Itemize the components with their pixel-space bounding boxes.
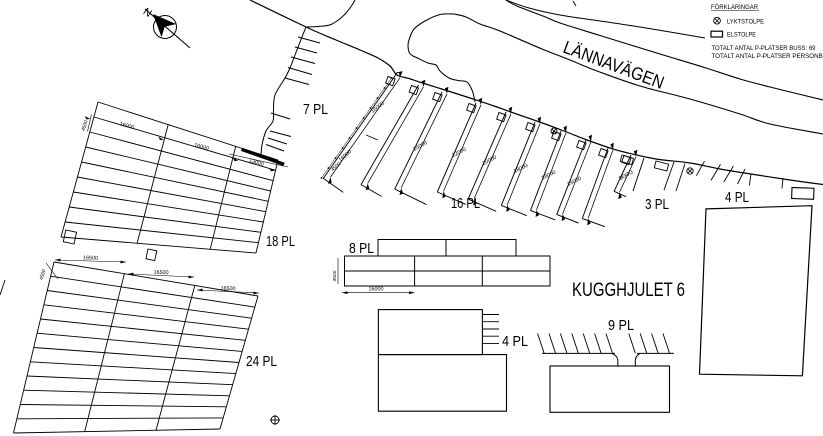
svg-text:16000: 16000 xyxy=(369,287,384,293)
svg-text:3 PL: 3 PL xyxy=(645,196,669,213)
svg-text:24 PL: 24 PL xyxy=(246,353,277,370)
svg-text:9 PL: 9 PL xyxy=(608,317,634,334)
svg-text:4 PL: 4 PL xyxy=(502,333,528,350)
svg-text:TOTALT ANTAL P-PLATSER PERSONB: TOTALT ANTAL P-PLATSER PERSONBI xyxy=(712,53,823,60)
svg-text:16500: 16500 xyxy=(153,270,168,277)
svg-text:KUGGHJULET 6: KUGGHJULET 6 xyxy=(572,280,685,301)
svg-text:16500: 16500 xyxy=(83,255,98,262)
svg-text:8 PL: 8 PL xyxy=(349,240,374,257)
svg-text:16 PL: 16 PL xyxy=(451,195,480,212)
svg-text:TOTALT ANTAL P-PLATSER BUSS: 6: TOTALT ANTAL P-PLATSER BUSS: 69 xyxy=(712,45,816,52)
svg-text:4 PL: 4 PL xyxy=(725,189,749,206)
svg-text:FÖRKLARINGAR: FÖRKLARINGAR xyxy=(711,3,758,11)
svg-text:ELSTOLPE: ELSTOLPE xyxy=(727,31,756,38)
svg-text:3500: 3500 xyxy=(332,270,338,281)
svg-text:18 PL: 18 PL xyxy=(266,233,295,250)
svg-text:LYKTSTOLPE: LYKTSTOLPE xyxy=(727,19,764,26)
svg-text:16500: 16500 xyxy=(220,286,235,293)
svg-text:7 PL: 7 PL xyxy=(303,101,328,118)
